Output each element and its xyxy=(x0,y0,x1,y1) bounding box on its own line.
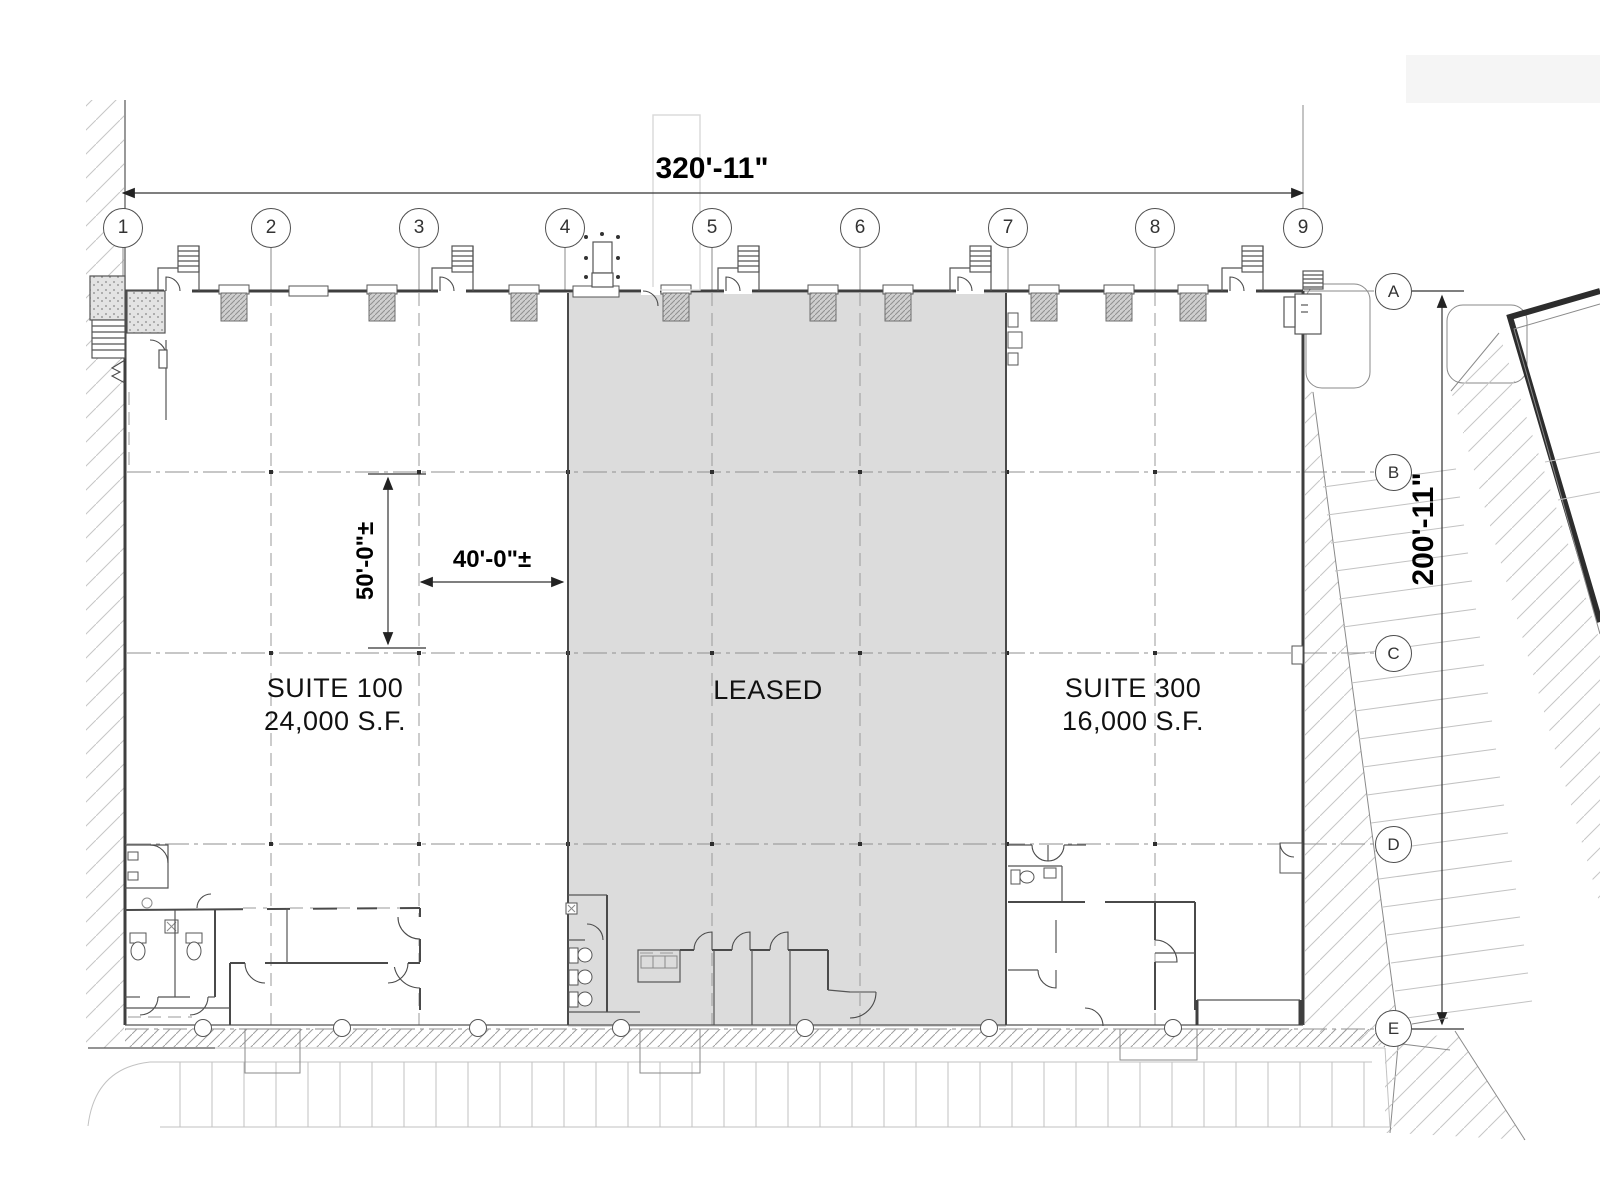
grid-label: 9 xyxy=(1298,217,1309,239)
sidewalk-aprons xyxy=(125,1020,1385,1074)
suite-name: LEASED xyxy=(618,674,918,707)
grid-label: 2 xyxy=(266,217,277,239)
grid-bubble-column-4: 4 xyxy=(545,208,585,248)
grid-bubble-column-6: 6 xyxy=(840,208,880,248)
grid-bubble-row-e: E xyxy=(1375,1010,1412,1047)
grid-bubble-column-9: 9 xyxy=(1283,208,1323,248)
overall-width-dimension: 320'-11" xyxy=(562,152,862,186)
grid-bubble-column-8: 8 xyxy=(1135,208,1175,248)
suite-name: SUITE 300 xyxy=(983,672,1283,705)
grid-bubble-column-5: 5 xyxy=(692,208,732,248)
grid-label: D xyxy=(1387,835,1399,855)
overall-depth-dimension: 200'-11" xyxy=(1407,429,1441,629)
grid-label: 5 xyxy=(707,217,718,239)
faint-offsite-block xyxy=(1406,55,1600,103)
storefront-window xyxy=(289,286,328,296)
grid-label: B xyxy=(1388,463,1399,483)
grid-bubble-row-c: C xyxy=(1375,635,1412,672)
suite-100-label: SUITE 100 24,000 S.F. xyxy=(185,672,485,738)
suite-area: 24,000 S.F. xyxy=(185,705,485,738)
storefront-window xyxy=(573,286,619,297)
suite-300-label: SUITE 300 16,000 S.F. xyxy=(983,672,1283,738)
grid-label: C xyxy=(1387,644,1399,664)
grid-bubble-column-1: 1 xyxy=(103,208,143,248)
grid-label: E xyxy=(1388,1019,1399,1039)
suite-100-offices xyxy=(125,845,424,1025)
suite-name: SUITE 100 xyxy=(185,672,485,705)
bay-width-dimension: 40'-0"± xyxy=(412,546,572,574)
suite-area: 16,000 S.F. xyxy=(983,705,1283,738)
bay-depth-dimension: 50'-0"± xyxy=(352,491,380,631)
grid-label: 8 xyxy=(1150,217,1161,239)
leased-label: LEASED xyxy=(618,674,918,707)
floor-plan-sheet: 1 2 3 4 5 6 7 8 9 A B C D E 320'-11" 200… xyxy=(0,0,1600,1200)
grid-bubble-column-2: 2 xyxy=(251,208,291,248)
grid-bubble-column-3: 3 xyxy=(399,208,439,248)
grid-label: 3 xyxy=(414,217,425,239)
grid-label: 7 xyxy=(1003,217,1014,239)
leased-area-fill xyxy=(568,293,1006,1027)
grid-label: 4 xyxy=(560,217,571,239)
grid-bubble-column-7: 7 xyxy=(988,208,1028,248)
grid-label: 6 xyxy=(855,217,866,239)
grid-bubble-row-d: D xyxy=(1375,826,1412,863)
grid-label: 1 xyxy=(118,217,129,239)
equipment-pad xyxy=(584,115,700,290)
grid-label: A xyxy=(1388,282,1399,302)
grid-bubble-row-a: A xyxy=(1375,273,1412,310)
